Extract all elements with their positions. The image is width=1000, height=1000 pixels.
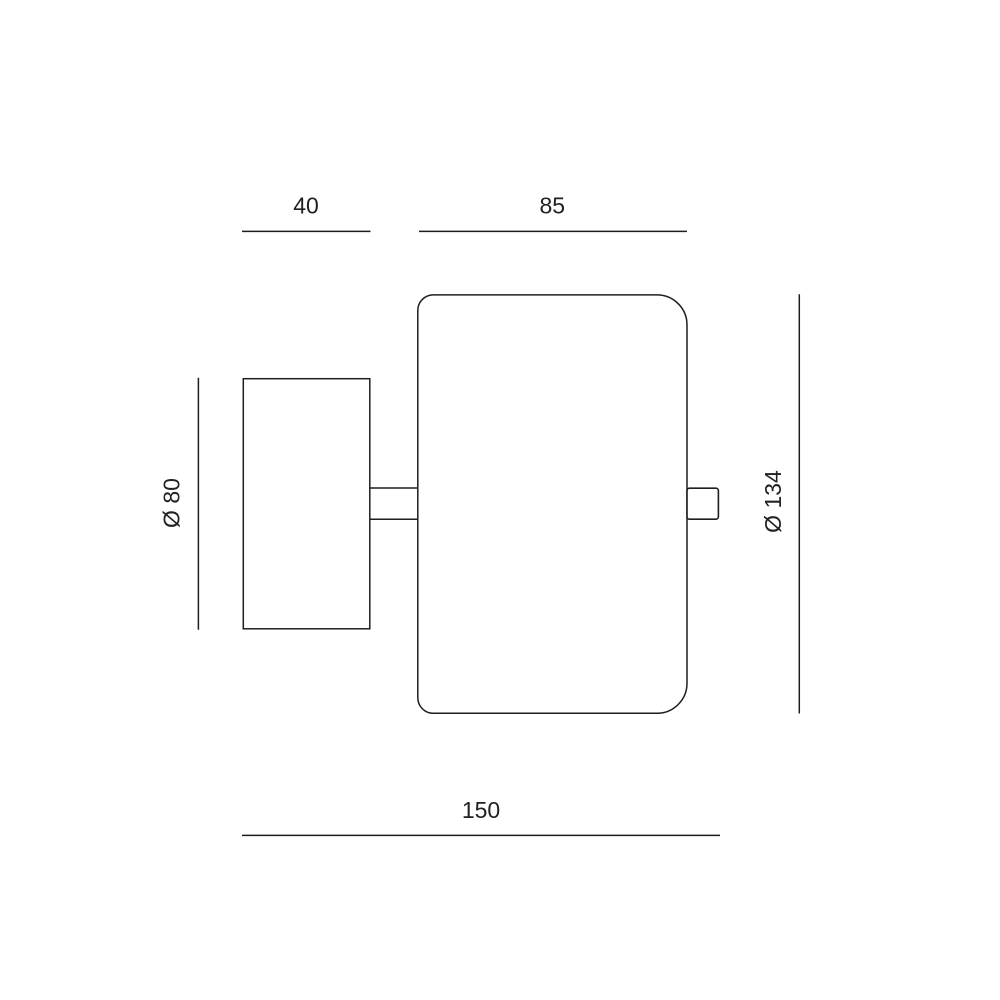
svg-text:40: 40	[293, 193, 319, 219]
svg-text:150: 150	[462, 797, 500, 823]
svg-text:85: 85	[540, 193, 566, 219]
svg-text:Ø 134: Ø 134	[760, 470, 786, 533]
svg-text:Ø 80: Ø 80	[159, 478, 185, 528]
